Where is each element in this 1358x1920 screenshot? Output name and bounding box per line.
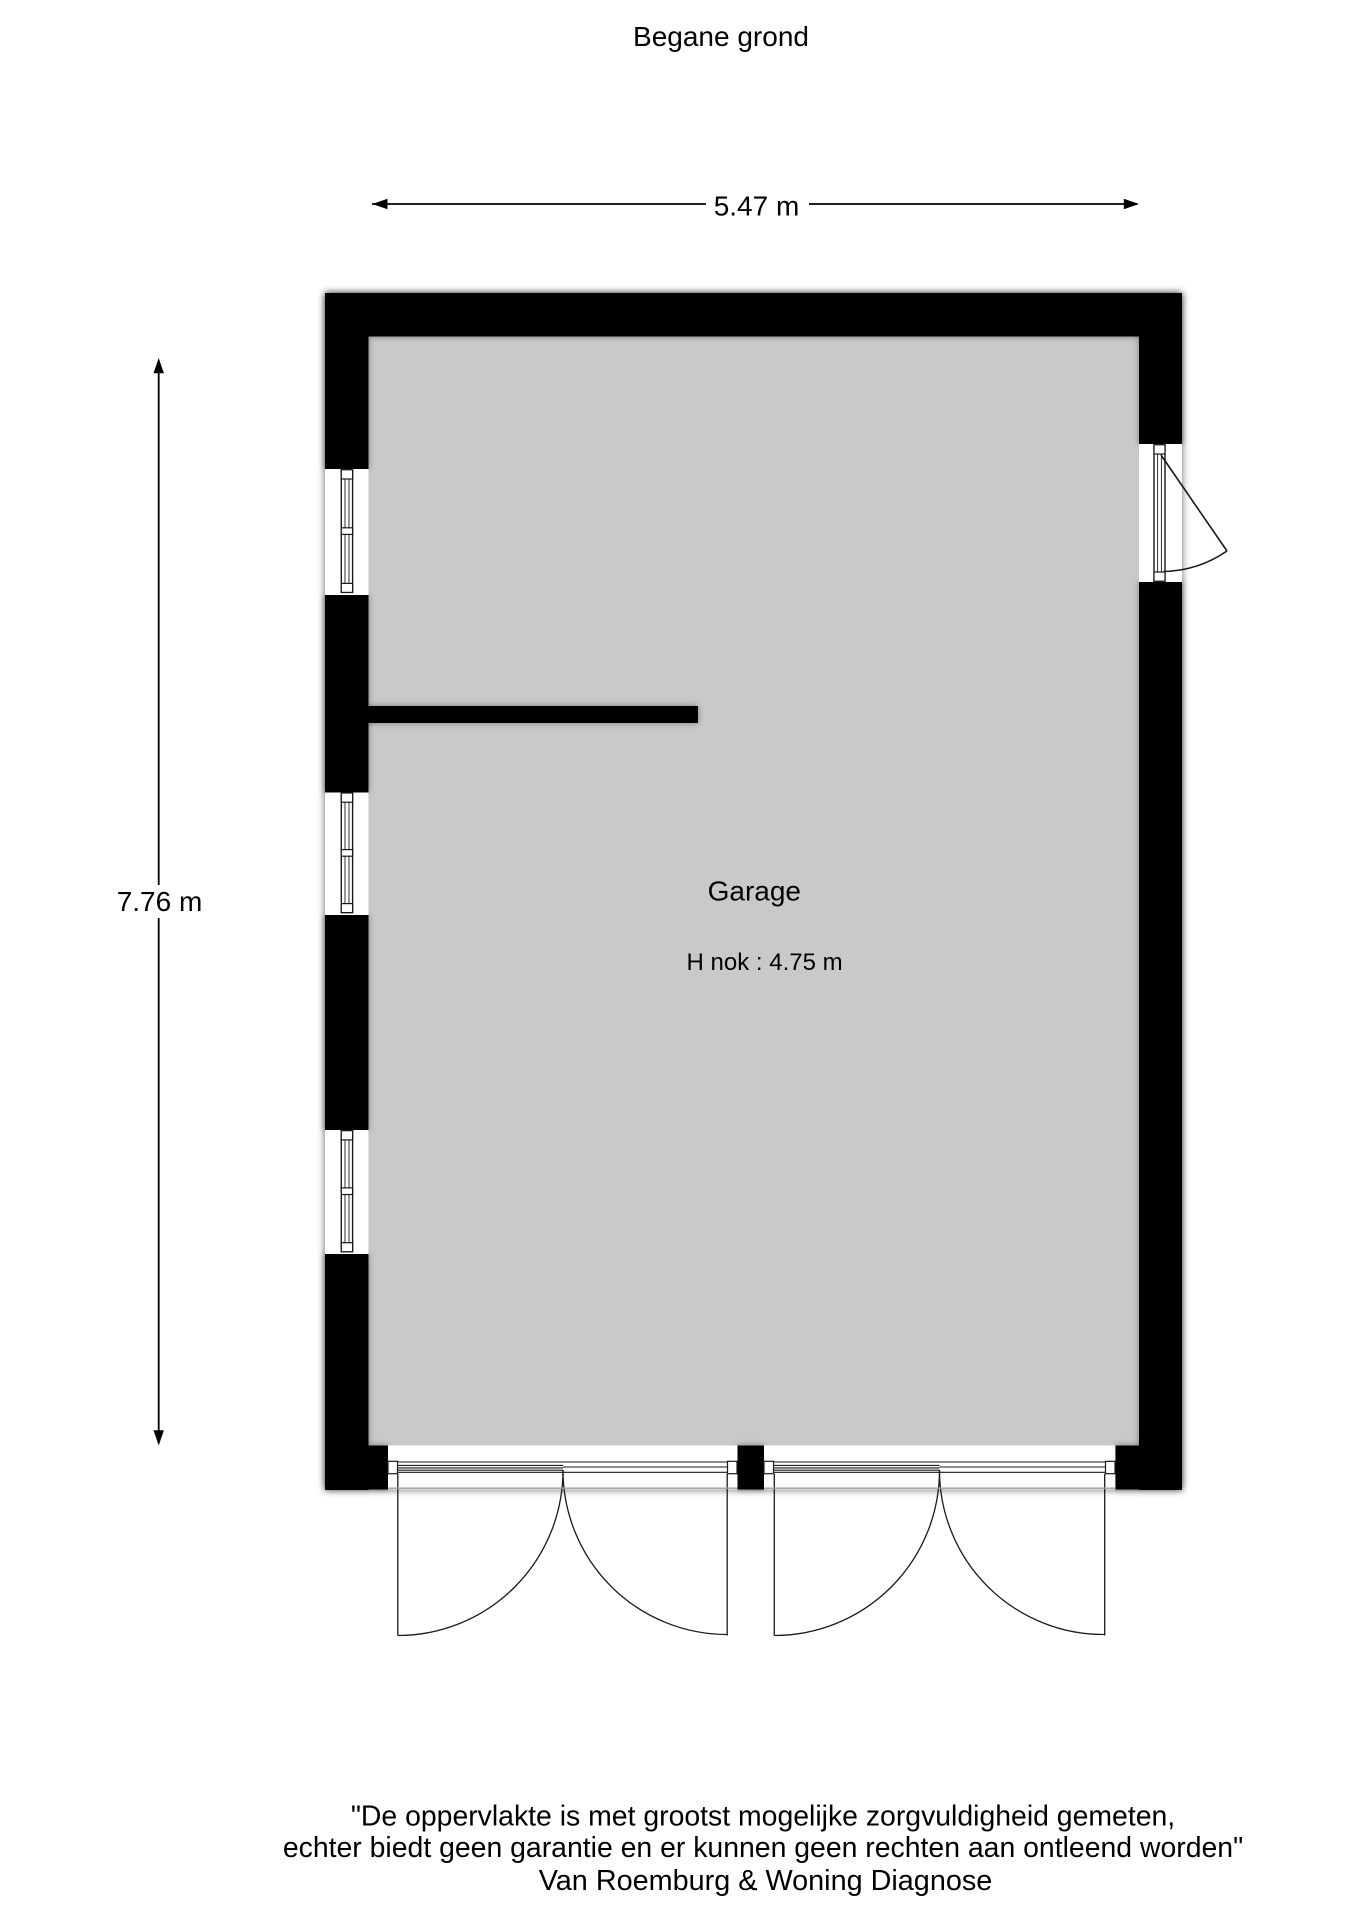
svg-text:echter biedt geen garantie en: echter biedt geen garantie en er kunnen … (283, 1832, 1243, 1864)
svg-text:Van Roemburg & Woning Diagnose: Van Roemburg & Woning Diagnose (539, 1865, 993, 1897)
svg-text:5.47 m: 5.47 m (714, 191, 800, 222)
svg-text:"De oppervlakte is met grootst: "De oppervlakte is met grootst mogelijke… (351, 1800, 1175, 1832)
svg-text:7.76 m: 7.76 m (117, 886, 203, 917)
svg-text:Garage: Garage (708, 875, 801, 906)
svg-text:H nok : 4.75 m: H nok : 4.75 m (687, 949, 843, 976)
svg-text:Begane grond: Begane grond (633, 21, 809, 52)
